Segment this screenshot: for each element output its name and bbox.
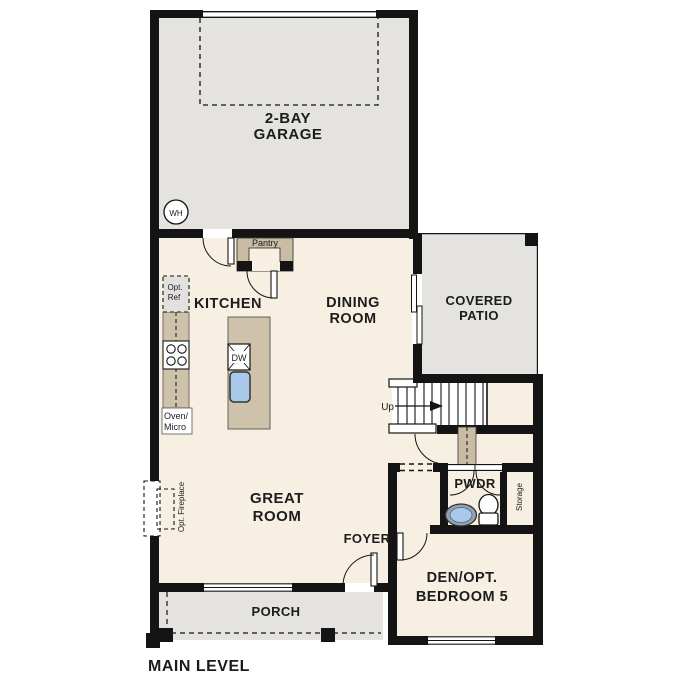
foyer-label: FOYER bbox=[344, 531, 391, 546]
dining-label-line2: ROOM bbox=[329, 311, 376, 327]
patio-label-line1: COVERED bbox=[445, 293, 512, 308]
dishwasher-label: DW bbox=[232, 353, 247, 363]
great-room-label-line1: GREAT bbox=[250, 490, 304, 507]
den-door-leaf bbox=[397, 533, 403, 560]
opt-ref-label-line1: Opt. bbox=[167, 283, 182, 292]
den-label-line2: BEDROOM 5 bbox=[416, 589, 508, 605]
front-door-opening bbox=[345, 583, 374, 592]
garage-label-line2: GARAGE bbox=[254, 126, 323, 143]
pantry-label: Pantry bbox=[252, 238, 279, 248]
floor-plan-drawing: 2-BAY GARAGE KITCHEN DINING ROOM COVERED… bbox=[0, 0, 687, 687]
toilet-tank-icon bbox=[479, 513, 498, 525]
pantry-wall-right bbox=[280, 261, 293, 271]
oven-label-line2: Micro bbox=[164, 422, 186, 432]
stair-nosing-bottom bbox=[389, 424, 436, 433]
porch-label: PORCH bbox=[252, 604, 301, 619]
patio-slider-panel bbox=[412, 275, 417, 312]
garage-label-line1: 2-BAY bbox=[265, 110, 311, 127]
garage-entry-opening bbox=[203, 229, 232, 238]
plan-title: MAIN LEVEL bbox=[148, 658, 250, 675]
front-door-leaf bbox=[371, 553, 377, 586]
floor-plan-canvas: 2-BAY GARAGE KITCHEN DINING ROOM COVERED… bbox=[0, 0, 687, 687]
water-heater-label: WH bbox=[169, 209, 183, 218]
stair-nosing-top bbox=[389, 379, 417, 387]
cooktop bbox=[163, 341, 189, 369]
patio-slider-panel bbox=[417, 306, 422, 344]
island-sink-icon bbox=[230, 372, 250, 402]
pantry-opening bbox=[252, 262, 280, 271]
pantry-door-leaf bbox=[271, 271, 277, 298]
oven-label-line1: Oven/ bbox=[164, 411, 189, 421]
great-room-label-line2: ROOM bbox=[253, 508, 302, 525]
patio-post bbox=[525, 233, 538, 246]
garage-entry-door-leaf bbox=[228, 238, 234, 264]
opt-ref-label-line2: Ref bbox=[168, 293, 181, 302]
storage-label: Storage bbox=[515, 482, 524, 511]
den-label-line1: DEN/OPT. bbox=[427, 570, 498, 586]
opt-fireplace-label: Opt. Fireplace bbox=[177, 481, 186, 532]
understair-wall bbox=[458, 427, 476, 467]
sink-basin-icon bbox=[450, 508, 472, 523]
dining-label-line1: DINING bbox=[326, 295, 380, 311]
stairs-up-label: Up bbox=[381, 402, 394, 413]
kitchen-label: KITCHEN bbox=[194, 296, 262, 312]
powder-label: PWDR bbox=[454, 476, 496, 491]
patio-label-line2: PATIO bbox=[459, 308, 499, 323]
pantry-wall-left bbox=[237, 261, 252, 271]
